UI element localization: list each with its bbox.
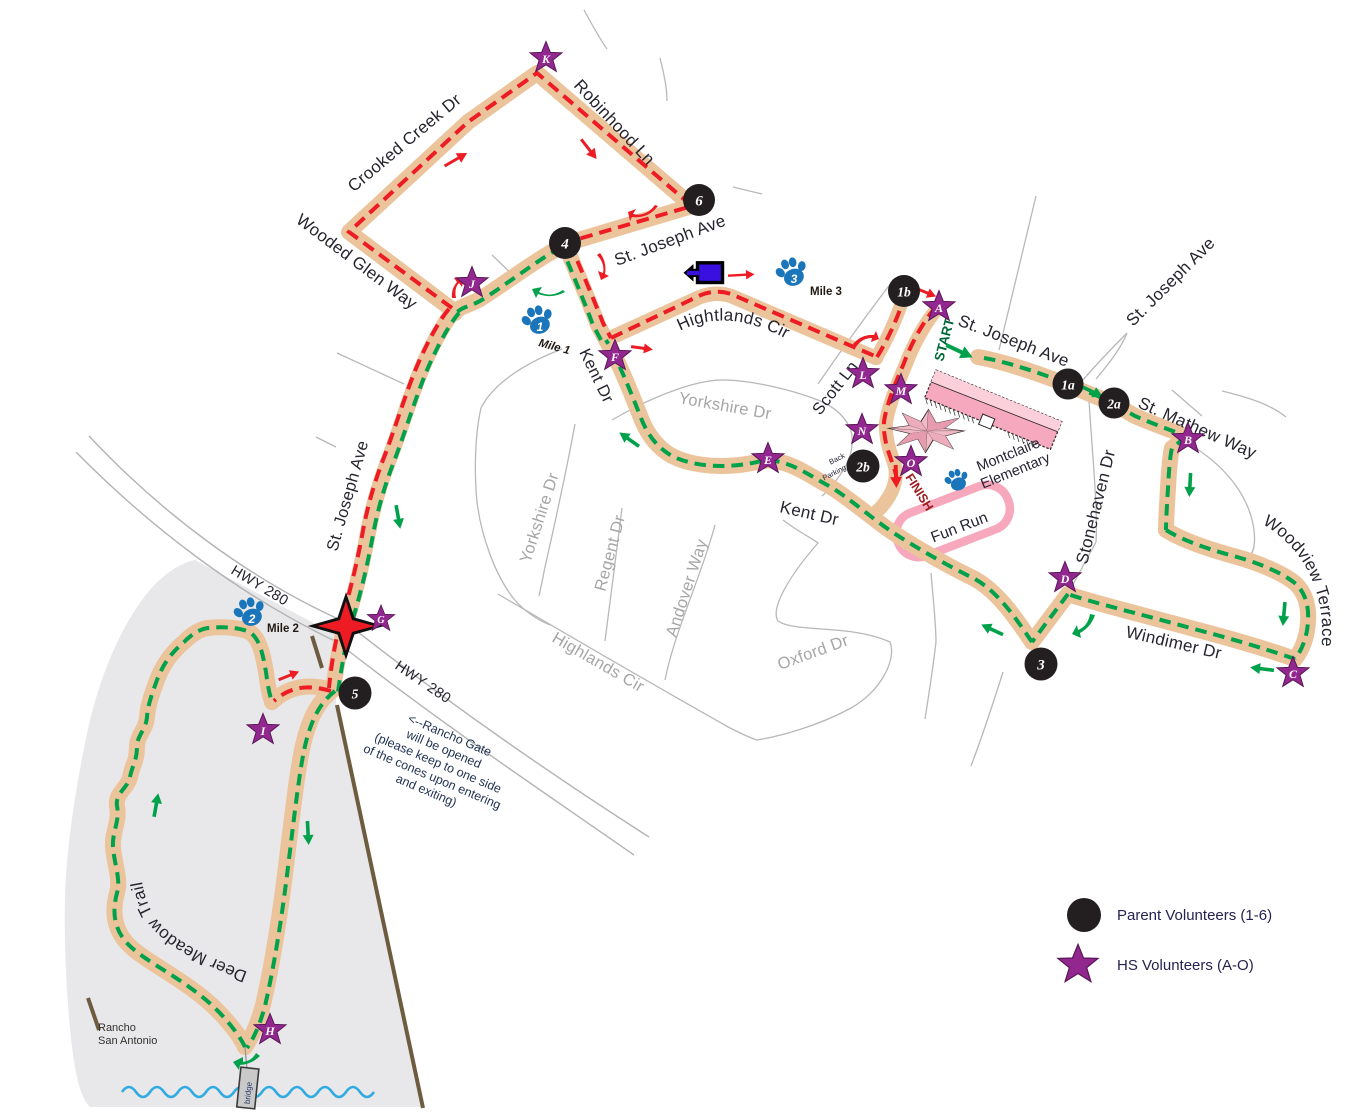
svg-text:L: L — [858, 368, 866, 382]
svg-text:Mile 3: Mile 3 — [810, 286, 842, 298]
svg-text:3: 3 — [1036, 658, 1045, 674]
svg-text:4: 4 — [560, 237, 569, 253]
svg-text:D: D — [1060, 572, 1070, 586]
svg-text:6: 6 — [695, 194, 703, 210]
svg-text:M: M — [895, 384, 907, 398]
svg-text:3: 3 — [791, 272, 798, 286]
svg-text:2b: 2b — [855, 460, 870, 475]
svg-text:E: E — [763, 453, 772, 467]
svg-text:2: 2 — [248, 612, 256, 626]
svg-text:F: F — [610, 350, 619, 364]
svg-text:C: C — [1289, 667, 1298, 681]
svg-text:K: K — [541, 52, 551, 66]
svg-text:O: O — [907, 456, 916, 470]
svg-text:5: 5 — [352, 687, 359, 702]
svg-text:J: J — [468, 277, 476, 291]
svg-text:HS Volunteers (A-O): HS Volunteers (A-O) — [1117, 957, 1254, 974]
svg-text:N: N — [857, 424, 868, 438]
svg-text:B: B — [1183, 433, 1192, 447]
svg-text:A: A — [934, 301, 943, 315]
svg-text:Rancho: Rancho — [98, 1022, 136, 1034]
svg-text:H: H — [264, 1024, 275, 1038]
svg-text:1: 1 — [537, 320, 544, 334]
svg-text:2a: 2a — [1106, 397, 1121, 412]
svg-text:Parent Volunteers (1-6): Parent Volunteers (1-6) — [1117, 907, 1272, 924]
svg-text:1b: 1b — [897, 285, 911, 300]
svg-text:Mile 2: Mile 2 — [267, 623, 299, 635]
svg-text:1a: 1a — [1061, 378, 1075, 393]
svg-text:G: G — [377, 615, 385, 626]
svg-text:San Antonio: San Antonio — [98, 1035, 157, 1047]
